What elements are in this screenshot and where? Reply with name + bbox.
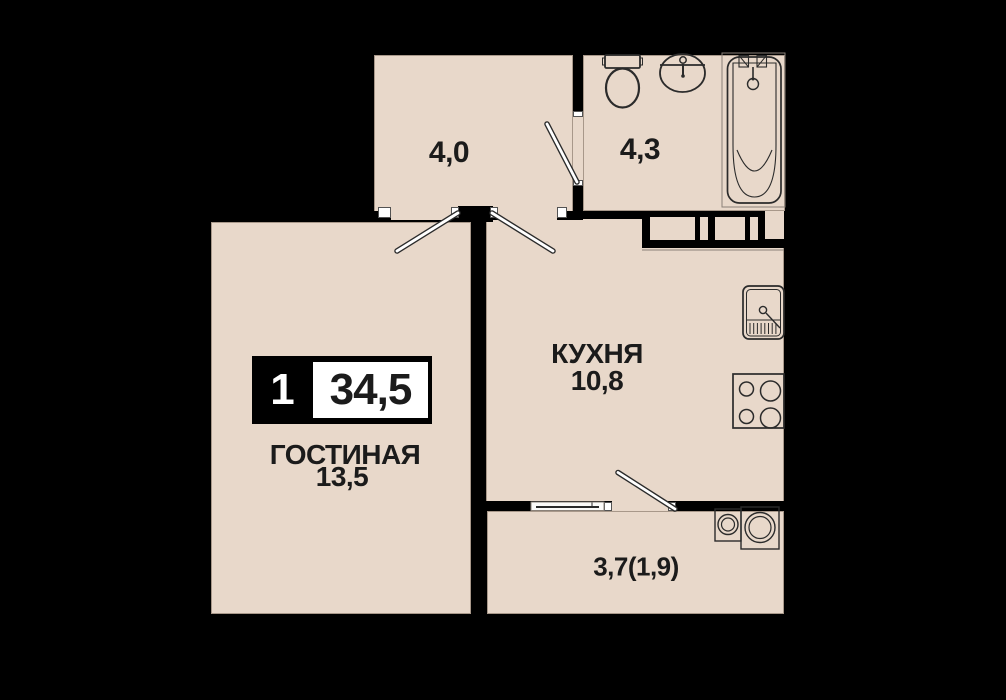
room-bathroom (583, 55, 785, 211)
door-opening-kitchen (498, 211, 557, 220)
apartment-badge: 1 34,5 (252, 356, 432, 424)
shaft-compartment (750, 217, 758, 240)
door-jamb (668, 502, 676, 511)
living-area-label: 13,5 (316, 461, 369, 493)
room-hallway (374, 55, 573, 212)
door-jamb (573, 180, 583, 186)
kitchen-area-label: 10,8 (571, 365, 624, 397)
hallway-area-label: 4,0 (429, 136, 469, 170)
door-opening-living (391, 211, 451, 220)
shaft-compartment (650, 217, 695, 240)
floor-plan: 4,0 4,3 КУХНЯ 10,8 ГОСТИНАЯ 13,5 3,7(1,9… (0, 0, 1006, 700)
door-jamb (557, 207, 567, 218)
door-jamb (573, 111, 583, 117)
wall-partition-head (458, 206, 493, 222)
door-opening-balcony (612, 501, 668, 511)
badge-room-count: 1 (252, 356, 313, 424)
shaft-compartment (715, 217, 745, 240)
door-jamb (378, 207, 391, 218)
bath-niche (765, 211, 784, 239)
door-jamb (451, 207, 459, 218)
badge-total-area: 34,5 (313, 362, 428, 418)
door-opening-bath (573, 117, 583, 180)
shaft-compartment (700, 217, 708, 240)
door-jamb (490, 207, 498, 218)
wall-shaft-right-bar (765, 239, 784, 248)
bathroom-area-label: 4,3 (620, 133, 660, 167)
door-jamb (604, 502, 612, 511)
balcony-area-label: 3,7(1,9) (593, 552, 679, 583)
